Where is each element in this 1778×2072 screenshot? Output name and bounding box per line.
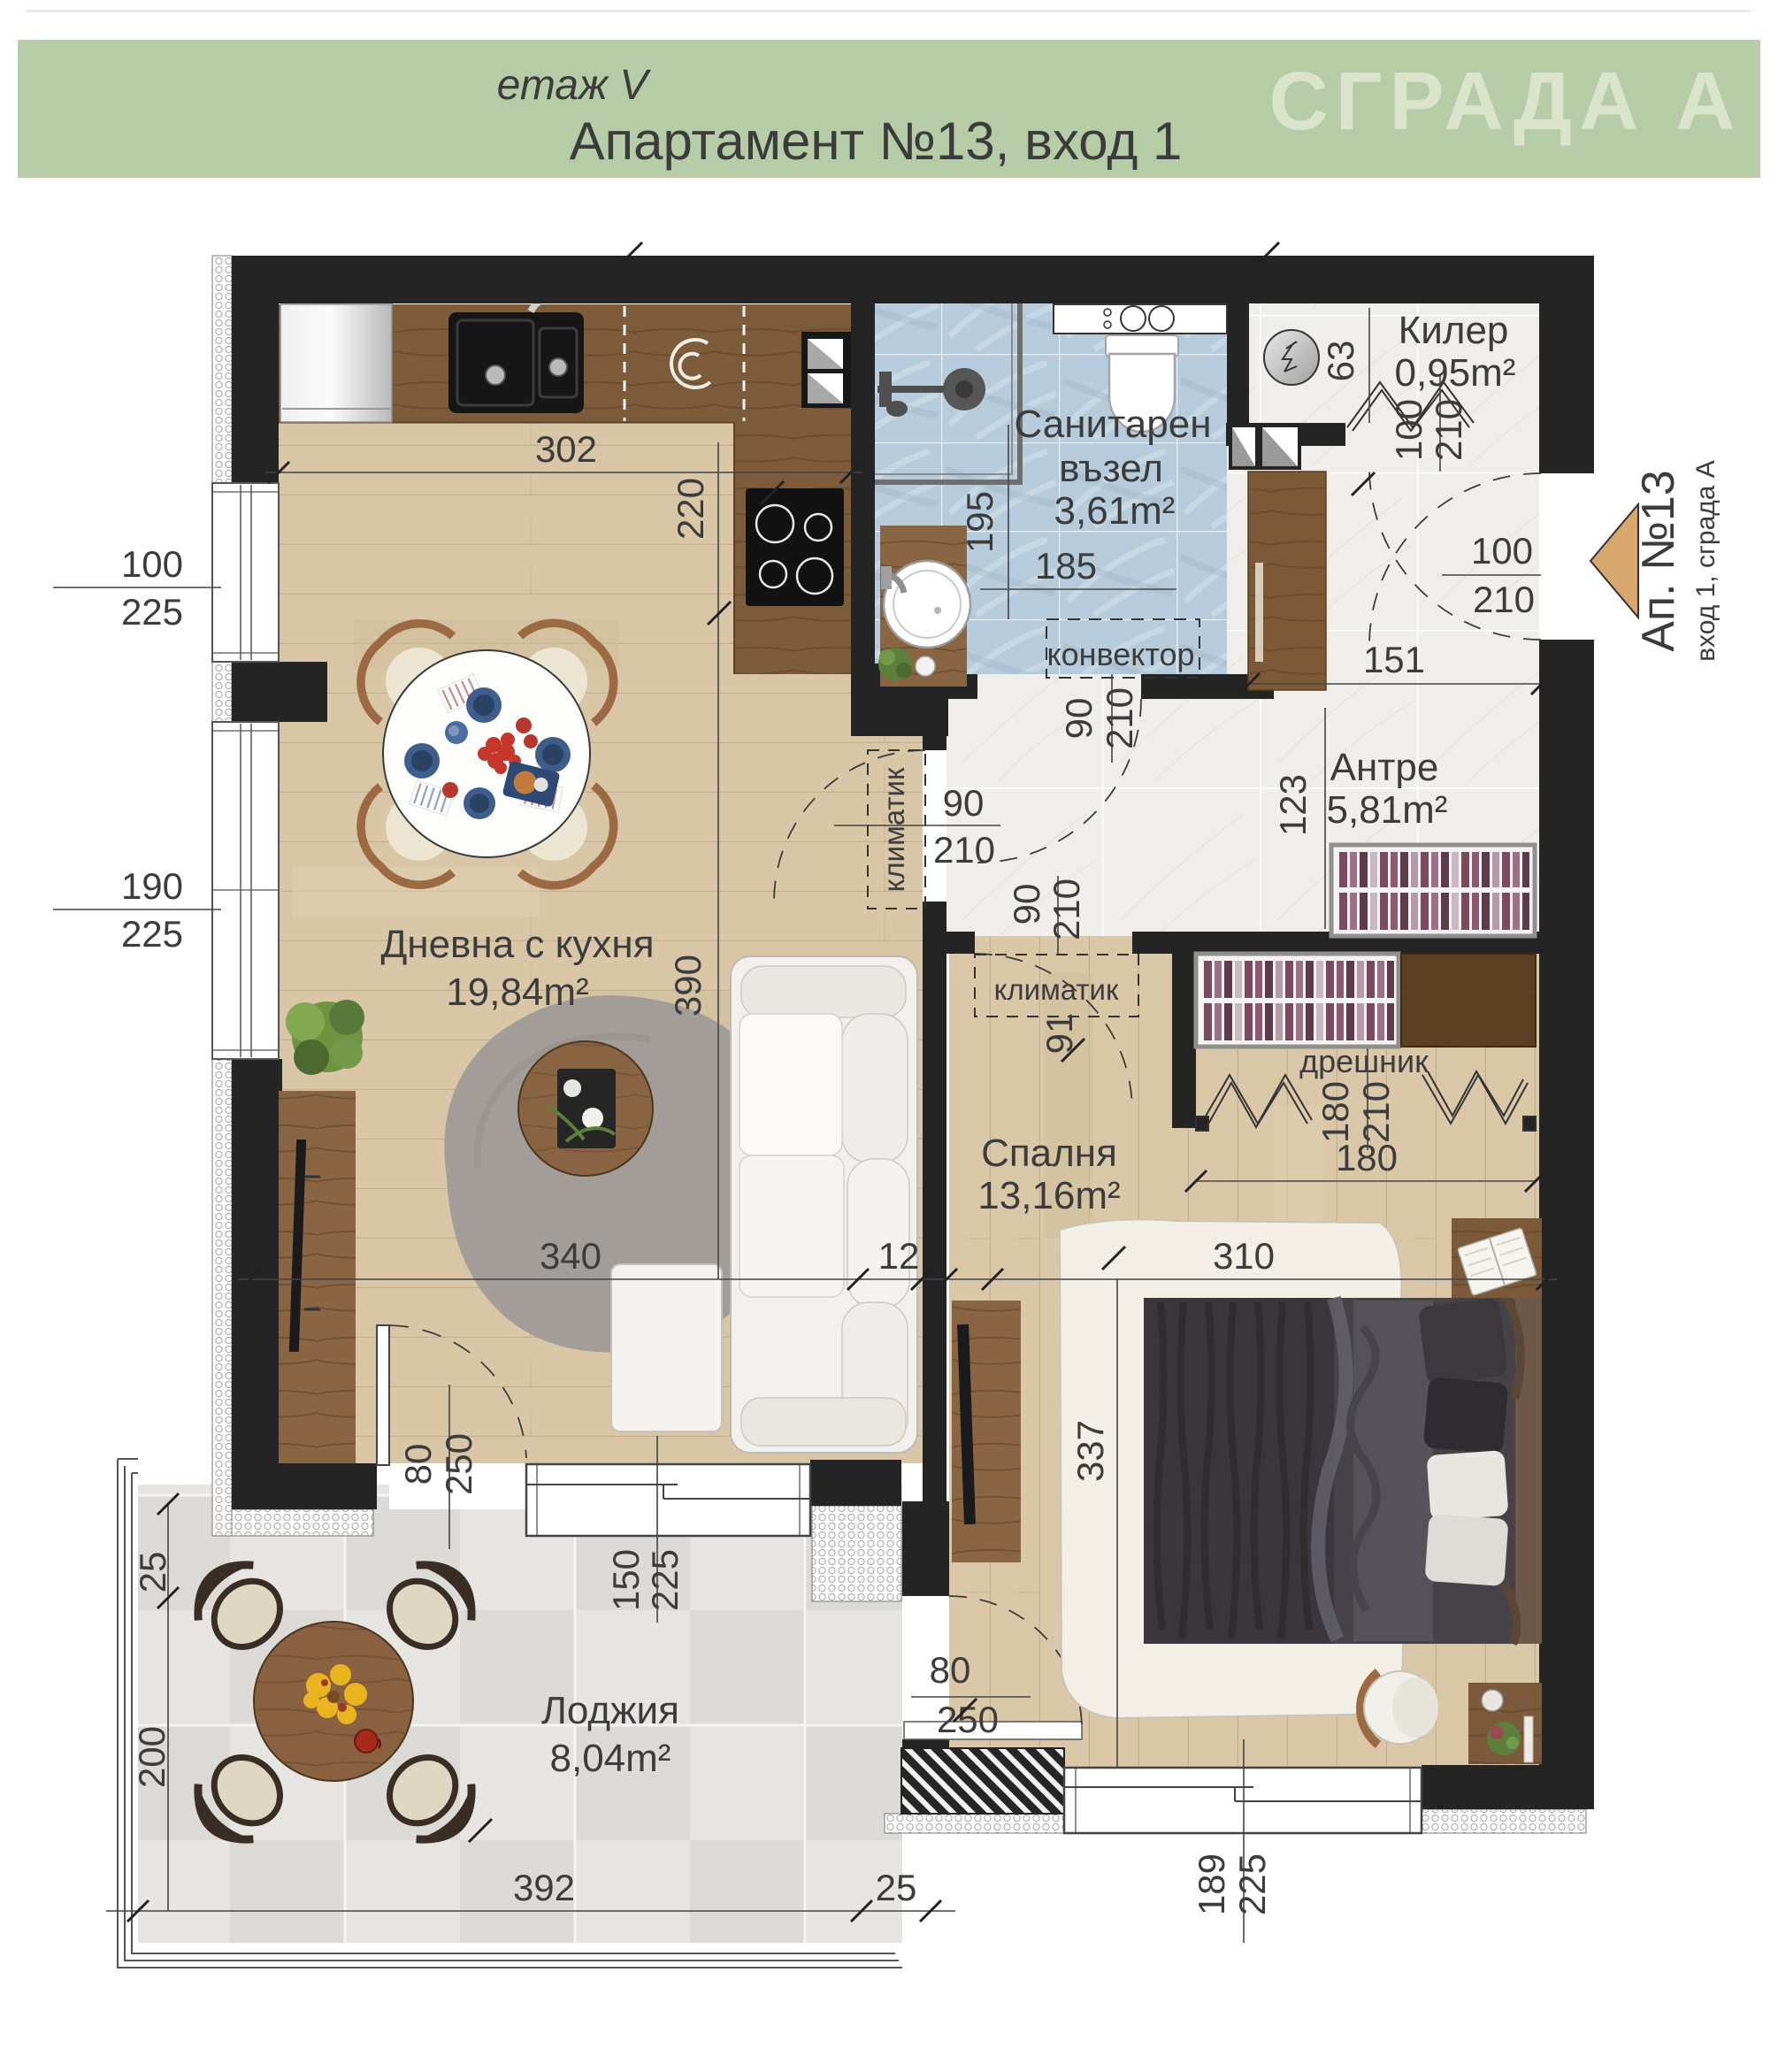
svg-text:90: 90	[943, 782, 985, 824]
svg-text:225: 225	[1231, 1853, 1273, 1915]
svg-text:220: 220	[670, 478, 711, 540]
svg-text:25: 25	[132, 1552, 173, 1593]
svg-text:Апартамент №13, вход 1: Апартамент №13, вход 1	[570, 111, 1183, 171]
svg-text:25: 25	[876, 1867, 917, 1908]
svg-text:13,16m²: 13,16m²	[977, 1174, 1120, 1217]
svg-text:180: 180	[1314, 1081, 1356, 1143]
svg-text:210: 210	[1046, 879, 1087, 940]
svg-text:210: 210	[1473, 579, 1535, 620]
svg-text:225: 225	[644, 1549, 686, 1611]
svg-text:0,95m²: 0,95m²	[1395, 351, 1516, 395]
svg-text:вход 1, сграда А: вход 1, сграда А	[1691, 460, 1721, 662]
svg-text:80: 80	[930, 1649, 971, 1691]
svg-text:100: 100	[1471, 530, 1533, 572]
svg-text:3,61m²: 3,61m²	[1054, 489, 1176, 533]
svg-text:225: 225	[121, 591, 183, 633]
svg-text:63: 63	[1320, 341, 1361, 382]
svg-text:200: 200	[131, 1726, 172, 1788]
svg-text:210: 210	[1428, 399, 1469, 461]
svg-text:250: 250	[937, 1699, 999, 1740]
svg-text:19,84m²: 19,84m²	[446, 971, 588, 1014]
svg-text:Антре: Антре	[1330, 746, 1439, 789]
svg-text:Ап. №13: Ап. №13	[1633, 470, 1684, 651]
svg-text:СГРАДА А: СГРАДА А	[1269, 55, 1743, 147]
svg-text:302: 302	[535, 428, 597, 470]
svg-text:Санитарен: Санитарен	[1015, 403, 1212, 446]
svg-text:150: 150	[605, 1549, 647, 1611]
svg-text:конвектор: конвектор	[1046, 636, 1194, 672]
svg-text:климатик: климатик	[994, 973, 1119, 1006]
svg-text:340: 340	[540, 1235, 602, 1277]
svg-text:185: 185	[1035, 545, 1097, 587]
svg-text:250: 250	[438, 1433, 479, 1495]
svg-text:100: 100	[1388, 399, 1429, 461]
svg-text:392: 392	[513, 1867, 575, 1908]
svg-text:195: 195	[959, 491, 1000, 553]
svg-text:190: 190	[121, 865, 183, 907]
svg-text:337: 337	[1069, 1420, 1111, 1482]
svg-text:189: 189	[1191, 1853, 1232, 1915]
svg-text:климатик: климатик	[878, 767, 910, 892]
svg-text:90: 90	[1006, 884, 1047, 925]
svg-text:151: 151	[1363, 639, 1425, 680]
svg-text:310: 310	[1213, 1235, 1275, 1277]
svg-text:225: 225	[121, 913, 183, 955]
svg-text:Килер: Килер	[1399, 309, 1509, 352]
svg-text:8,04m²: 8,04m²	[550, 1737, 671, 1780]
svg-text:Лоджия: Лоджия	[541, 1689, 679, 1732]
svg-text:Дневна с кухня: Дневна с кухня	[380, 923, 654, 966]
svg-text:възел: възел	[1059, 447, 1163, 490]
svg-text:100: 100	[121, 543, 183, 585]
svg-text:210: 210	[1099, 687, 1140, 749]
svg-text:етаж V: етаж V	[497, 62, 652, 109]
svg-text:210: 210	[1355, 1081, 1397, 1143]
svg-text:210: 210	[933, 829, 995, 871]
svg-text:123: 123	[1272, 774, 1314, 836]
svg-text:90: 90	[1058, 698, 1100, 740]
svg-text:12: 12	[878, 1235, 920, 1277]
svg-text:5,81m²: 5,81m²	[1327, 788, 1448, 832]
svg-text:дрешник: дрешник	[1299, 1043, 1429, 1079]
svg-text:Спалня: Спалня	[981, 1132, 1117, 1175]
svg-text:390: 390	[667, 955, 709, 1017]
svg-text:80: 80	[397, 1444, 439, 1485]
